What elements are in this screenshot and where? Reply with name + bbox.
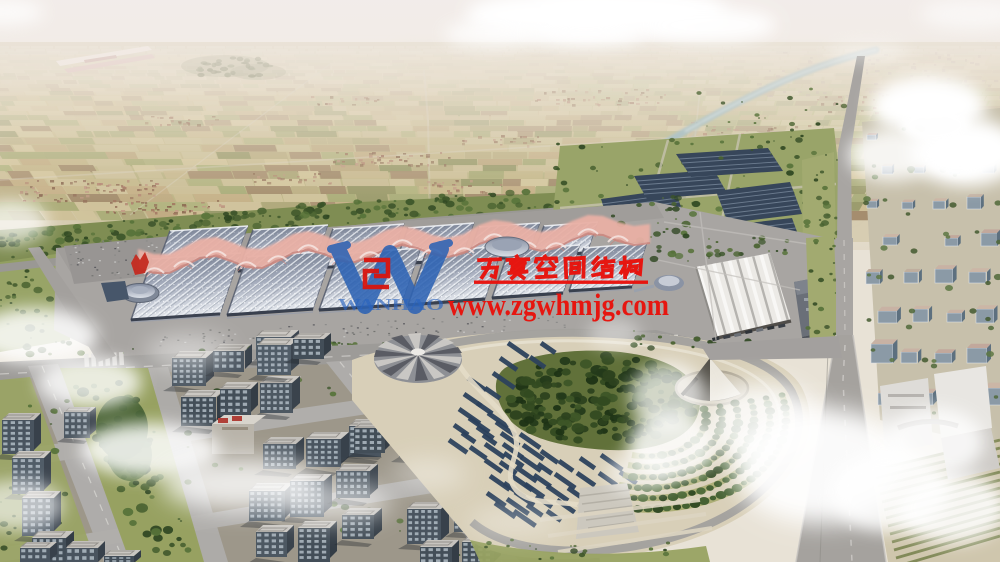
svg-text:www.zgwhmjg.com: www.zgwhmjg.com <box>448 287 669 322</box>
svg-text:WANHAO: WANHAO <box>338 295 444 314</box>
